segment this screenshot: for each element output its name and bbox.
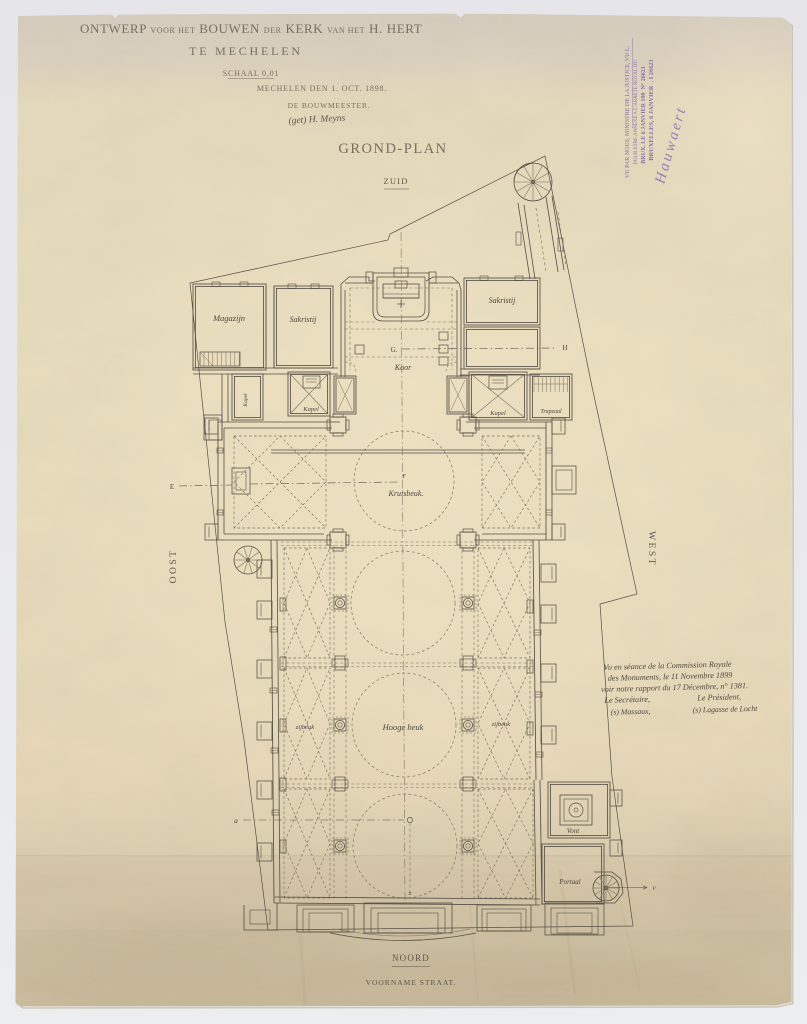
svg-text:E: E: [170, 483, 174, 491]
svg-text:G.: G.: [391, 346, 398, 354]
svg-text:BRUX. LE 6 JANVIER 190 N° 266: BRUX. LE 6 JANVIER 190 N° 26621: [640, 66, 647, 163]
svg-text:GROND-PLAN: GROND-PLAN: [338, 141, 447, 157]
svg-text:DE BOUWMEESTER.: DE BOUWMEESTER.: [288, 101, 371, 110]
svg-text:Magazijn: Magazijn: [212, 313, 245, 323]
svg-text:BRUXELLES, 6 JANVIER . I 2662: BRUXELLES, 6 JANVIER . I 26621: [648, 59, 655, 161]
svg-text:Trapzaal: Trapzaal: [540, 409, 562, 415]
svg-text:Kapel: Kapel: [489, 410, 506, 417]
svg-text:SCHAAL 0,01: SCHAAL 0,01: [223, 69, 280, 78]
svg-text:TE MECHELEN: TE MECHELEN: [189, 44, 303, 58]
svg-text:Kapel: Kapel: [302, 406, 319, 413]
svg-text:Hooge beuk: Hooge beuk: [382, 722, 424, 732]
svg-text:ONTWERP VOOR HET BOUWEN DER KE: ONTWERP VOOR HET BOUWEN DER KERK VAN HET…: [80, 21, 422, 36]
svg-text:(s) Lagasse de Locht: (s) Lagasse de Locht: [693, 704, 759, 715]
svg-text:Portaal: Portaal: [558, 878, 580, 886]
svg-text:Koor: Koor: [394, 363, 412, 372]
svg-text:b: b: [409, 891, 412, 897]
svg-text:Kruisbeuk.: Kruisbeuk.: [388, 489, 424, 498]
svg-text:Kapel: Kapel: [243, 393, 249, 408]
svg-text:POUR ETRE ANNEXE A L’ARRETE RO: POUR ETRE ANNEXE A L’ARRETE ROYAL DU: [634, 60, 639, 164]
svg-text:Vont: Vont: [567, 827, 581, 835]
svg-text:OOST: OOST: [169, 549, 179, 584]
svg-text:NOORD: NOORD: [392, 953, 430, 963]
svg-text:a: a: [234, 816, 238, 825]
svg-text:Le Secrétaire,: Le Secrétaire,: [603, 695, 650, 705]
svg-text:F: F: [402, 473, 406, 480]
svg-text:VOORNAME STRAAT.: VOORNAME STRAAT.: [366, 978, 457, 987]
svg-text:zijbeuk: zijbeuk: [491, 721, 511, 728]
svg-text:Sakristij: Sakristij: [290, 315, 317, 324]
svg-text:ZUID: ZUID: [383, 176, 408, 186]
svg-text:H: H: [562, 344, 567, 352]
svg-text:MECHELEN DEN 1. OCT. 1898.: MECHELEN DEN 1. OCT. 1898.: [257, 84, 387, 93]
svg-text:WEST: WEST: [646, 531, 656, 567]
svg-text:zijbeuk: zijbeuk: [295, 724, 315, 731]
svg-text:VU PAR NOUS, MINISTRE DE LA JU: VU PAR NOUS, MINISTRE DE LA JUSTICE, VU …: [625, 45, 631, 178]
svg-text:Sakristij: Sakristij: [489, 296, 516, 305]
svg-text:(s) Massaux,: (s) Massaux,: [611, 707, 651, 717]
svg-text:Le Président,: Le Président,: [696, 692, 741, 702]
